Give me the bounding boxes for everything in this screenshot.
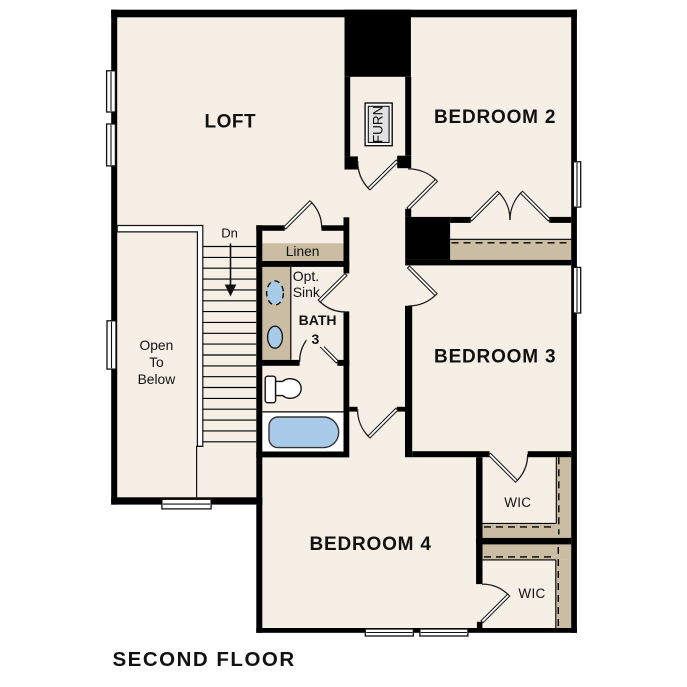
svg-text:SECOND FLOOR: SECOND FLOOR [113, 648, 296, 671]
svg-text:Sink: Sink [293, 284, 321, 300]
svg-text:BEDROOM 2: BEDROOM 2 [434, 107, 556, 128]
svg-text:Open: Open [140, 338, 174, 353]
svg-text:3: 3 [312, 331, 320, 347]
svg-text:WIC: WIC [504, 495, 531, 510]
svg-text:Dn: Dn [221, 225, 238, 240]
svg-text:BEDROOM 3: BEDROOM 3 [434, 346, 556, 367]
svg-text:BEDROOM 4: BEDROOM 4 [309, 534, 431, 555]
svg-text:FURN: FURN [371, 106, 386, 143]
svg-text:LOFT: LOFT [204, 111, 256, 132]
svg-text:WIC: WIC [518, 586, 545, 601]
svg-text:BATH: BATH [299, 312, 337, 328]
svg-text:Below: Below [138, 372, 176, 387]
svg-text:Linen: Linen [286, 244, 320, 259]
svg-text:Opt.: Opt. [293, 268, 319, 284]
svg-text:To: To [149, 355, 164, 370]
